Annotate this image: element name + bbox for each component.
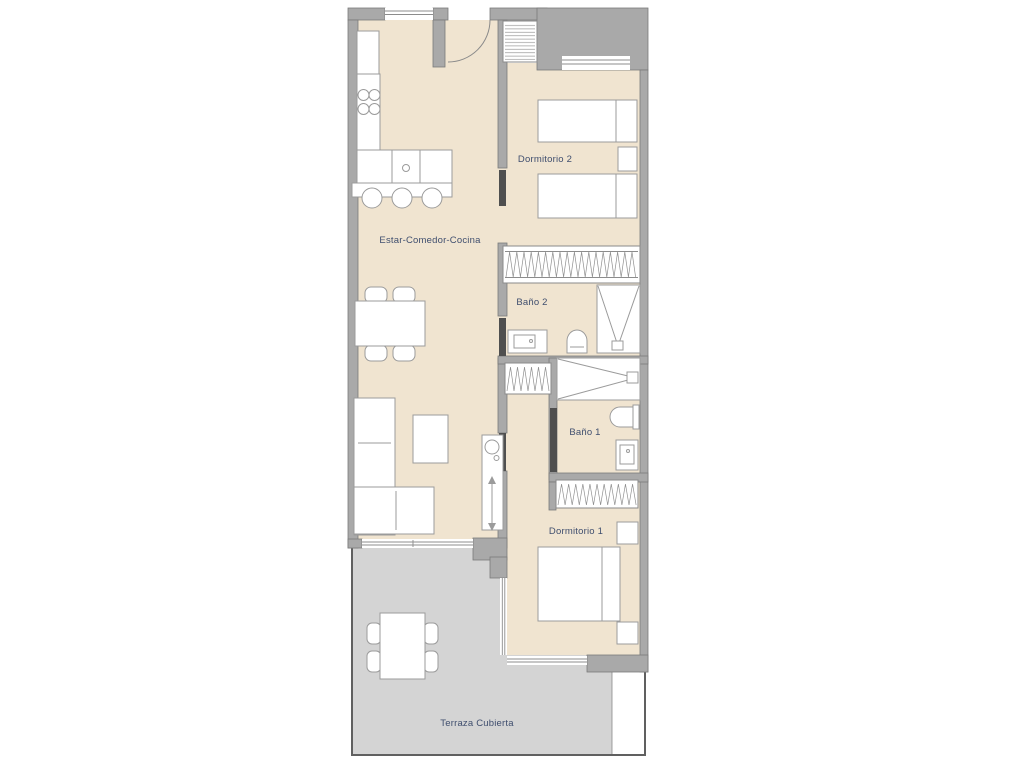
wall xyxy=(433,8,448,20)
dining-chair-symbol xyxy=(365,345,387,361)
stool-symbol xyxy=(422,188,442,208)
floor-plan: Estar-Comedor-Cocina Dormitorio 2 Baño 2 xyxy=(0,0,1024,768)
wall xyxy=(490,557,507,578)
terrace-chair-symbol xyxy=(424,651,438,672)
wall xyxy=(587,655,648,672)
bedroom2-window xyxy=(562,56,630,70)
nightstand-symbol xyxy=(617,522,638,544)
bath2-shower-drain xyxy=(612,341,623,350)
bedroom2-label: Dormitorio 2 xyxy=(518,154,572,165)
terrace-table-symbol xyxy=(380,613,425,679)
bath2-label: Baño 2 xyxy=(516,297,547,308)
double-bed-symbol xyxy=(538,547,620,621)
single-bed-symbol xyxy=(538,174,637,218)
bath2-door xyxy=(499,318,506,356)
terrace-chair-symbol xyxy=(367,623,381,644)
living-terrace-glass-door xyxy=(362,539,473,548)
stool-symbol xyxy=(362,188,382,208)
wall xyxy=(348,539,362,548)
bath1-toilet-tank xyxy=(633,405,639,429)
coffee-table-symbol xyxy=(413,415,448,463)
bath1-label: Baño 1 xyxy=(569,427,600,438)
entry-closet-shelves xyxy=(505,23,535,60)
bedroom1-side-window xyxy=(500,578,507,655)
terrace-label: Terraza Cubierta xyxy=(440,718,514,729)
dining-table-symbol xyxy=(355,301,425,346)
terrace-open-strip xyxy=(612,668,645,755)
stool-symbol xyxy=(392,188,412,208)
nightstand-symbol xyxy=(617,622,638,644)
dining-chair-symbol xyxy=(393,345,415,361)
wall-right xyxy=(640,70,648,672)
sofa-chaise-symbol xyxy=(354,487,434,534)
kitchen-window xyxy=(385,8,433,20)
living-room-label: Estar-Comedor-Cocina xyxy=(379,235,481,246)
entry-door-stub xyxy=(433,20,445,67)
kitchen-island-symbol xyxy=(357,150,452,183)
bath1-door xyxy=(550,408,557,472)
terrace-chair-symbol xyxy=(424,623,438,644)
terrace-chair-symbol xyxy=(367,651,381,672)
floor-plan-page: Estar-Comedor-Cocina Dormitorio 2 Baño 2 xyxy=(0,0,1024,768)
single-bed-symbol xyxy=(538,100,637,142)
nightstand-symbol xyxy=(618,147,637,171)
bath1-shower-drain xyxy=(627,372,638,383)
wall xyxy=(549,482,556,510)
corridor xyxy=(505,363,551,394)
bath2-toilet-symbol xyxy=(567,330,587,353)
bedroom2-door xyxy=(499,170,506,206)
bedroom1-label: Dormitorio 1 xyxy=(549,526,603,537)
fridge-symbol xyxy=(357,31,379,74)
bedroom1-bottom-window xyxy=(507,656,587,665)
wall xyxy=(348,8,385,20)
